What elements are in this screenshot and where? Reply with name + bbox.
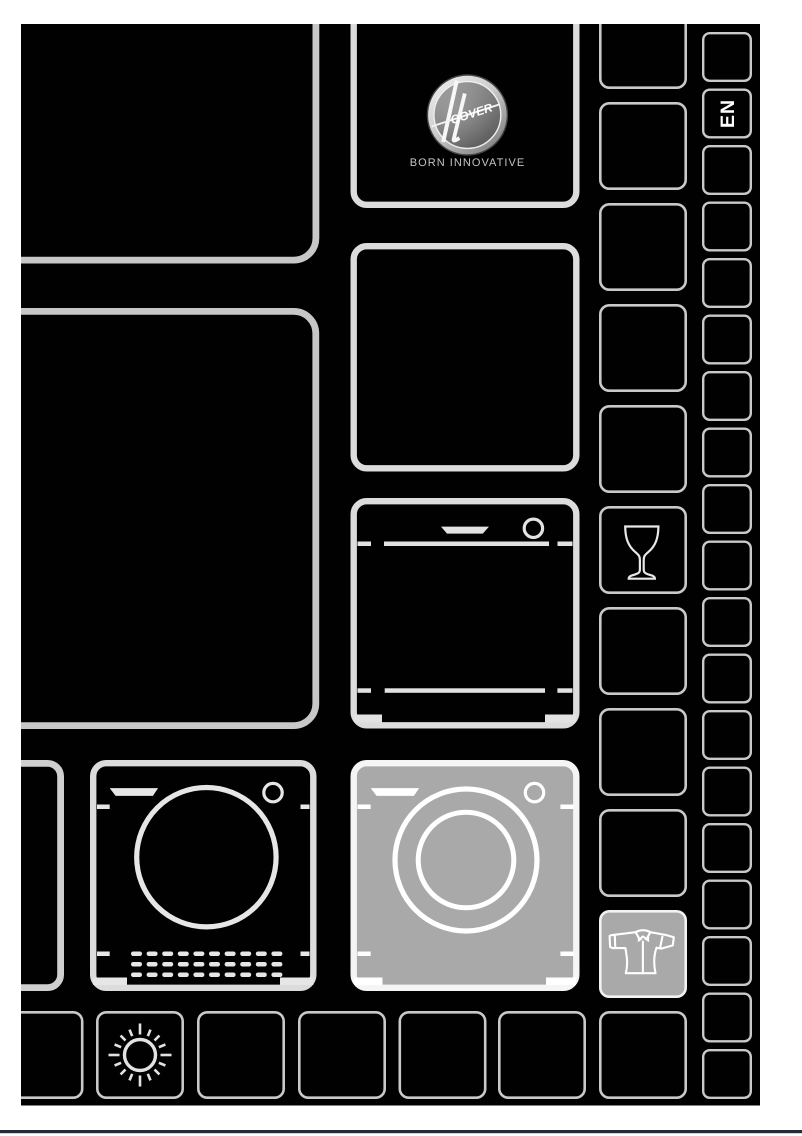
svg-text:EN: EN [717,99,739,128]
svg-text:BORN INNOVATIVE: BORN INNOVATIVE [410,157,526,169]
